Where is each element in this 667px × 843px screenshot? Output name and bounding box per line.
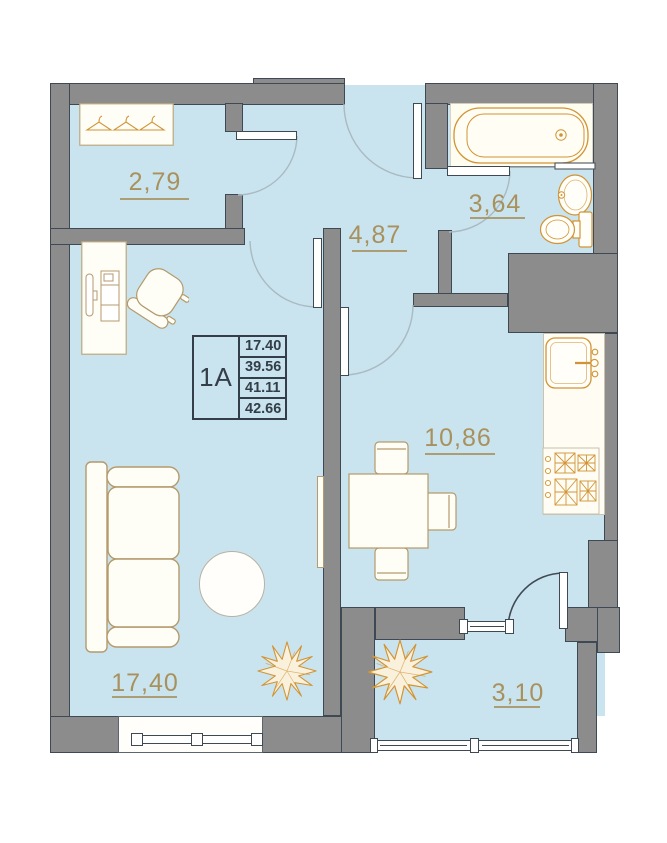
entrance-door-leaf bbox=[413, 103, 422, 179]
wall bbox=[577, 642, 597, 753]
window-mullion bbox=[370, 738, 378, 753]
room-label-underline bbox=[470, 217, 525, 219]
wall bbox=[425, 103, 448, 169]
legend-row: 17.40 bbox=[240, 337, 285, 358]
legend-row: 41.11 bbox=[240, 379, 285, 400]
wall bbox=[597, 607, 620, 653]
room-label-underline bbox=[120, 198, 189, 200]
room-label-bathroom: 3,64 bbox=[445, 190, 545, 219]
kitchen-door-leaf bbox=[340, 307, 349, 376]
wardrobe-door-leaf bbox=[236, 131, 297, 140]
room-label-living-room: 17,40 bbox=[95, 669, 195, 698]
window-mullion bbox=[191, 733, 203, 746]
wall bbox=[225, 103, 243, 132]
wall bbox=[375, 607, 465, 640]
plant bbox=[366, 638, 434, 706]
wall bbox=[323, 228, 341, 716]
wall bbox=[50, 228, 245, 245]
kitchen-sink bbox=[544, 335, 602, 393]
legend-rows: 17.40 39.56 41.11 42.66 bbox=[240, 337, 285, 418]
balcony-glazing bbox=[376, 740, 471, 751]
window-mullion bbox=[131, 733, 143, 746]
wall bbox=[588, 540, 618, 610]
bathroom-door-leaf bbox=[447, 166, 510, 176]
living-room-door-leaf bbox=[313, 238, 322, 308]
room-label-underline bbox=[494, 706, 540, 708]
room-label-underline bbox=[112, 696, 177, 698]
window bbox=[466, 621, 508, 632]
legend-row: 39.56 bbox=[240, 358, 285, 379]
room-label-kitchen: 10,86 bbox=[408, 424, 508, 453]
balcony-glazing bbox=[478, 740, 573, 751]
wall-shaft bbox=[508, 253, 618, 333]
wardrobe-rail bbox=[79, 103, 174, 146]
entrance-floor bbox=[345, 85, 425, 105]
unit-legend: 1A 17.40 39.56 41.11 42.66 bbox=[192, 335, 287, 420]
window-mullion bbox=[459, 619, 468, 634]
room-label-underline bbox=[425, 453, 495, 455]
window-mullion bbox=[470, 738, 479, 753]
room-label-hallway: 4,87 bbox=[325, 221, 425, 250]
coffee-table bbox=[199, 551, 265, 617]
balcony-door-leaf bbox=[559, 572, 568, 629]
plant bbox=[256, 640, 318, 702]
wall bbox=[50, 83, 70, 753]
wall bbox=[425, 83, 618, 105]
toilet bbox=[538, 209, 596, 251]
wall bbox=[438, 230, 452, 298]
stove bbox=[542, 447, 600, 515]
legend-row: 42.66 bbox=[240, 399, 285, 418]
floor-plan: 2,79 4,87 3,64 10,86 17,40 3,10 1A 17.40… bbox=[0, 0, 667, 843]
window-mullion bbox=[251, 733, 263, 746]
sofa bbox=[85, 461, 191, 653]
room-label-wardrobe: 2,79 bbox=[105, 168, 205, 197]
window-mullion bbox=[571, 738, 579, 753]
wall bbox=[413, 293, 508, 307]
tv bbox=[317, 476, 324, 568]
unit-label: 1A bbox=[194, 337, 240, 418]
dining-table-set bbox=[346, 440, 458, 582]
room-label-balcony: 3,10 bbox=[468, 679, 568, 708]
bathtub bbox=[450, 103, 593, 168]
wall bbox=[50, 83, 345, 105]
desk bbox=[81, 241, 127, 355]
office-chair bbox=[127, 263, 189, 331]
room-label-underline bbox=[352, 250, 407, 252]
window-mullion bbox=[505, 619, 514, 634]
